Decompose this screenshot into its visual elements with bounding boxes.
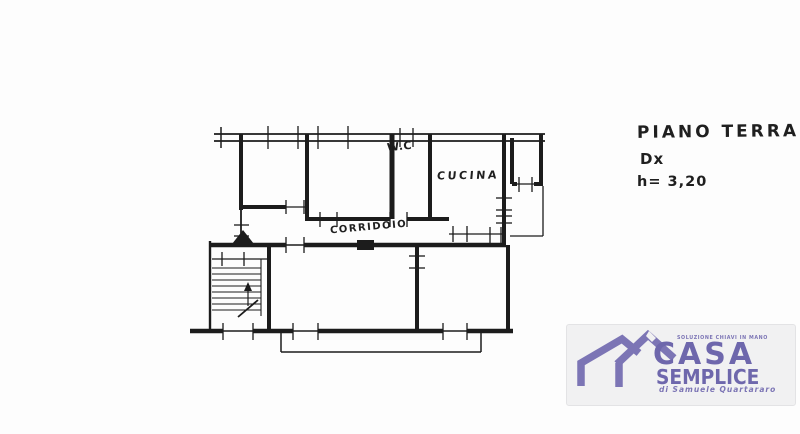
plan-title: PIANO TERRA (637, 123, 799, 142)
door-window-symbols (212, 177, 534, 340)
bottom-balcony (281, 333, 481, 352)
top-right-balcony (510, 134, 543, 236)
agency-logo-card: SOLUZIONE CHIAVI IN MANO CASA SEMPLICE d… (566, 324, 796, 406)
logo-brand-semplice: SEMPLICE (656, 367, 759, 387)
plan-ceiling-height: h= 3,20 (637, 175, 707, 190)
room-label-wc: W.C (386, 140, 412, 154)
door-threshold (357, 240, 374, 250)
top-exterior-wall (214, 127, 545, 148)
logo-byline: di Samuele Quartararo (659, 386, 776, 394)
entry-door-symbol (232, 230, 254, 244)
plan-unit-label: Dx (640, 152, 664, 167)
room-label-kitchen: CUCINA (436, 169, 499, 181)
scanned-floorplan-page: W.C CUCINA CORRIDOIO PIANO TERRA Dx h= 3… (0, 0, 800, 434)
